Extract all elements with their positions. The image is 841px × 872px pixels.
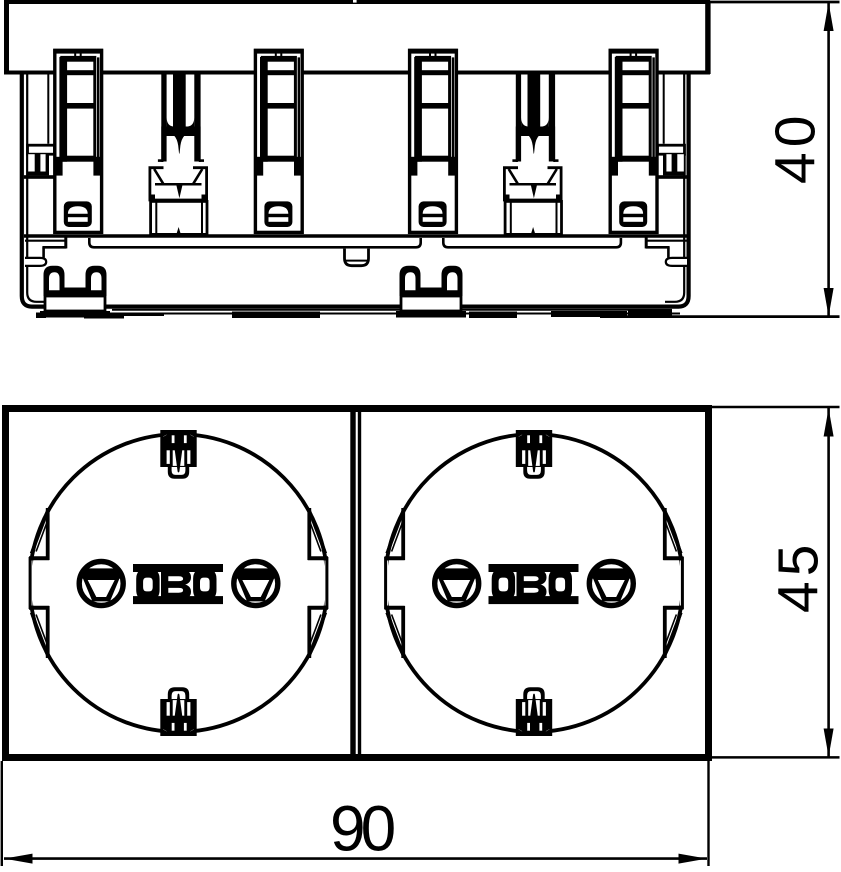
svg-text:40: 40: [764, 111, 828, 184]
svg-text:45: 45: [767, 540, 831, 613]
svg-text:90: 90: [330, 793, 395, 865]
